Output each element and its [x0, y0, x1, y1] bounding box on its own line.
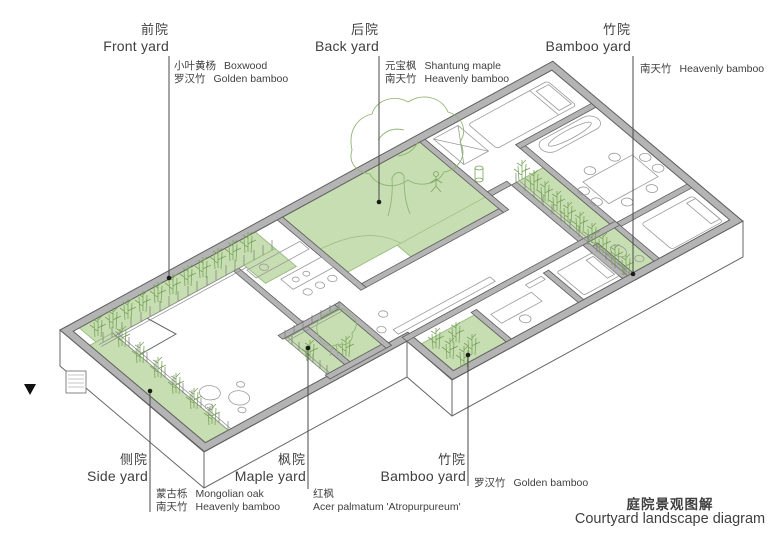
label-maple-yard: 枫院 Maple yard: [235, 452, 306, 484]
back-yard-en: Back yard: [315, 38, 379, 54]
desk: [491, 292, 542, 323]
bamboo-yard-top-zh: 竹院: [546, 22, 631, 38]
round-table: [224, 388, 254, 408]
courtyard-landscape-diagram: 前院 Front yard 小叶黄杨Boxwood 罗汉竹Golden bamb…: [0, 0, 780, 551]
plants-front-yard: 小叶黄杨Boxwood 罗汉竹Golden bamboo: [174, 60, 288, 86]
maple-yard-zh: 枫院: [235, 452, 306, 468]
diagram-title: 庭院景观图解 Courtyard landscape diagram: [562, 497, 778, 527]
label-front-yard: 前院 Front yard: [103, 22, 169, 54]
front-yard-en: Front yard: [103, 38, 169, 54]
bamboo-yard-bottom-zh: 竹院: [381, 452, 466, 468]
round-table: [195, 383, 225, 403]
pillow: [536, 85, 571, 111]
label-side-yard: 侧院 Side yard: [87, 452, 148, 484]
label-bamboo-yard-top: 竹院 Bamboo yard: [546, 22, 631, 54]
bamboo-yard-bottom-en: Bamboo yard: [381, 468, 466, 484]
plants-maple-yard: 红枫 Acer palmatum 'Atropurpureum': [313, 488, 461, 514]
front-yard-zh: 前院: [103, 22, 169, 38]
plants-back-yard: 元宝枫Shantung maple 南天竹Heavenly bamboo: [385, 60, 509, 86]
bed: [468, 81, 576, 149]
side-yard-zh: 侧院: [87, 452, 148, 468]
maple-yard-en: Maple yard: [235, 468, 306, 484]
diagram-title-zh: 庭院景观图解: [562, 497, 778, 512]
diagram-title-en: Courtyard landscape diagram: [562, 512, 778, 527]
plants-bamboo-yard-bottom: 罗汉竹Golden bamboo: [474, 477, 588, 490]
bamboo-yard-top-en: Bamboo yard: [546, 38, 631, 54]
side-yard-en: Side yard: [87, 468, 148, 484]
back-yard-zh: 后院: [315, 22, 379, 38]
entrance-arrow-icon: [24, 384, 36, 395]
dining-table: [583, 155, 658, 204]
plants-bamboo-yard-top: 南天竹Heavenly bamboo: [640, 63, 764, 76]
label-back-yard: 后院 Back yard: [315, 22, 379, 54]
label-bamboo-yard-bottom: 竹院 Bamboo yard: [381, 452, 466, 484]
plants-side-yard: 蒙古栎Mongolian oak 南天竹Heavenly bamboo: [156, 488, 280, 514]
